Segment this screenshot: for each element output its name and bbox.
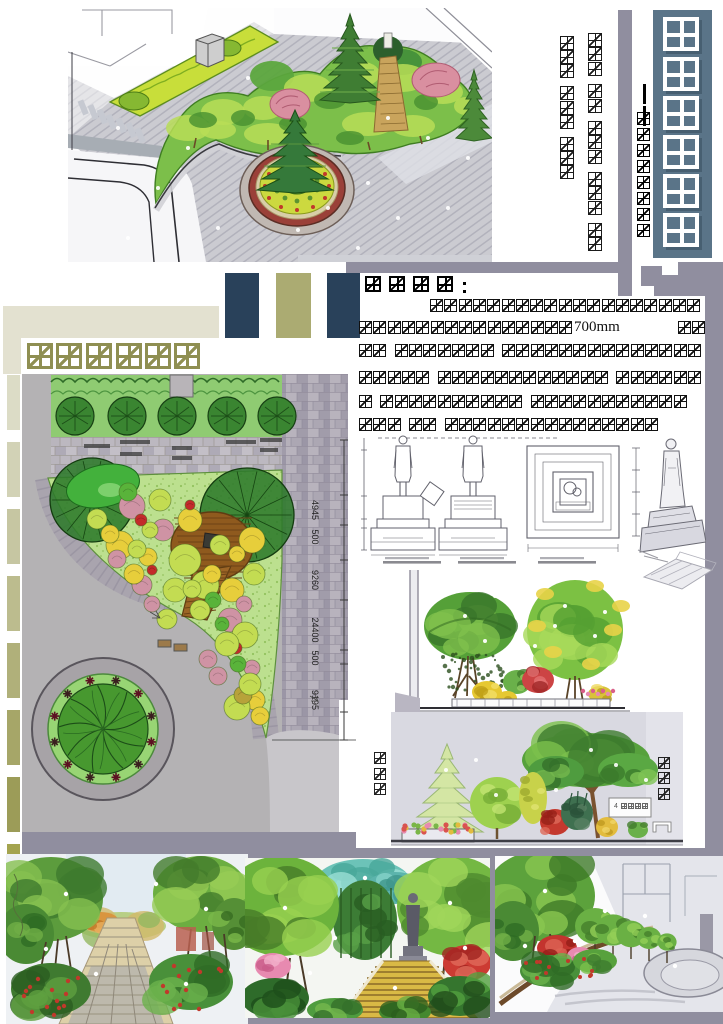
- svg-text:9260: 9260: [310, 570, 320, 590]
- svg-text:4945: 4945: [310, 500, 320, 520]
- svg-text:500: 500: [310, 529, 320, 544]
- svg-text:9195: 9195: [310, 690, 320, 710]
- svg-text:24400: 24400: [310, 617, 320, 642]
- svg-text:500: 500: [310, 650, 320, 665]
